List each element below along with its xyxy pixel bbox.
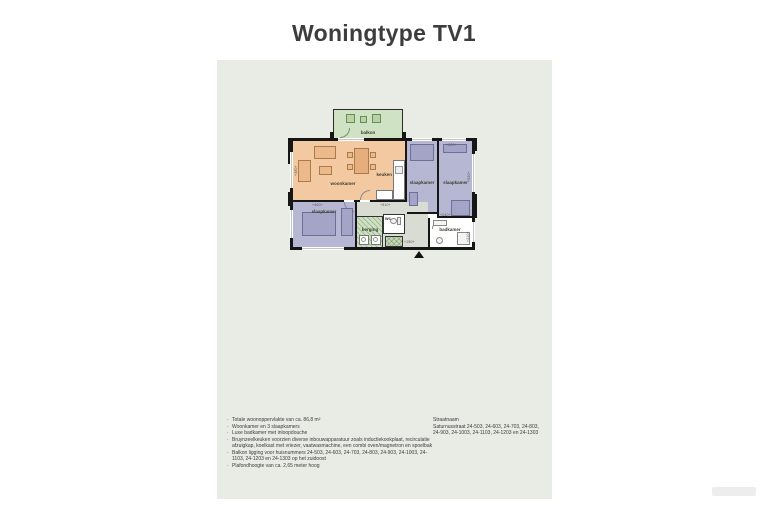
- dining-table: [354, 148, 369, 174]
- chair: [347, 164, 353, 170]
- window: [302, 247, 344, 250]
- berging-label: berging: [357, 227, 383, 232]
- badkamer-label: badkamer: [430, 227, 470, 232]
- wall-pier: [288, 192, 293, 206]
- page-title: Woningtype TV1: [0, 20, 768, 47]
- dryer-drum: [373, 237, 378, 242]
- notes-list: Totale woonoppervlakte van ca. 86,8 m² W…: [227, 417, 439, 469]
- slaapkamer-a-label: slaapkamer: [407, 180, 437, 185]
- door-gap: [360, 200, 370, 202]
- washbasin: [436, 237, 443, 244]
- balcony-furniture: [372, 114, 381, 123]
- dim-bedroom-b-right: +520+: [467, 171, 471, 182]
- address-block: Straatnaam Saturnusstraat 24-503, 24-603…: [433, 417, 551, 437]
- watermark: [712, 487, 756, 496]
- note-item: Bruynzeelkeuken voorzien diverse inbouwa…: [227, 437, 439, 450]
- sofa: [298, 160, 311, 182]
- keuken-label: keuken: [366, 172, 392, 177]
- woonkamer-label: woonkamer: [318, 181, 368, 186]
- dim-bedroom-b-top: +220+: [446, 143, 457, 147]
- kitchen-counter: [376, 190, 393, 200]
- bed: [410, 144, 434, 161]
- note-item: Balkon ligging voor huisnummers 24-503, …: [227, 450, 439, 463]
- sofa: [314, 146, 336, 159]
- address-line: 24-903, 24-1003, 24-1103, 24-1203 en 24-…: [433, 430, 551, 437]
- wall: [407, 212, 439, 214]
- entrance-arrow-icon: [414, 251, 424, 258]
- wall-pier: [472, 138, 477, 151]
- window: [442, 138, 466, 141]
- slaapkamer-c-label: slaapkamer: [298, 209, 350, 214]
- washing-machine-drum: [361, 237, 366, 242]
- window: [412, 138, 432, 141]
- window: [472, 154, 475, 192]
- dim-bedroom-c-top: +400+: [312, 203, 323, 207]
- coffee-table: [319, 166, 332, 175]
- page: Woningtype TV1 balkon: [0, 0, 768, 512]
- balcony-furniture: [360, 116, 367, 123]
- wall-pier: [472, 194, 477, 218]
- window: [472, 222, 475, 242]
- dim-badkamer-top: +240+: [440, 213, 451, 217]
- chair: [370, 164, 376, 170]
- chair: [347, 152, 353, 158]
- window: [338, 138, 364, 141]
- floorplan: balkon: [288, 108, 480, 260]
- bed: [302, 212, 336, 236]
- window: [290, 152, 293, 188]
- chair: [370, 152, 376, 158]
- balcony-furniture: [346, 114, 355, 123]
- sink: [433, 220, 447, 226]
- note-item: Plafondhoogte van ca. 2,65 meter hoog: [227, 463, 439, 470]
- window: [290, 210, 293, 238]
- wc-label: wc: [385, 216, 395, 221]
- dresser: [409, 192, 418, 206]
- bed: [451, 200, 470, 216]
- shaft: [385, 236, 403, 247]
- dim-entrance: +150+: [404, 240, 415, 244]
- kitchen-hob: [395, 166, 403, 174]
- dim-woonkamer-left: +380+: [294, 165, 298, 176]
- dim-badkamer-right: +210+: [466, 231, 470, 242]
- dim-hall-top: +510+: [380, 203, 391, 207]
- toilet-tank: [397, 217, 401, 225]
- wall: [405, 141, 407, 202]
- wall: [355, 202, 357, 247]
- floorplan-panel: balkon: [217, 60, 552, 499]
